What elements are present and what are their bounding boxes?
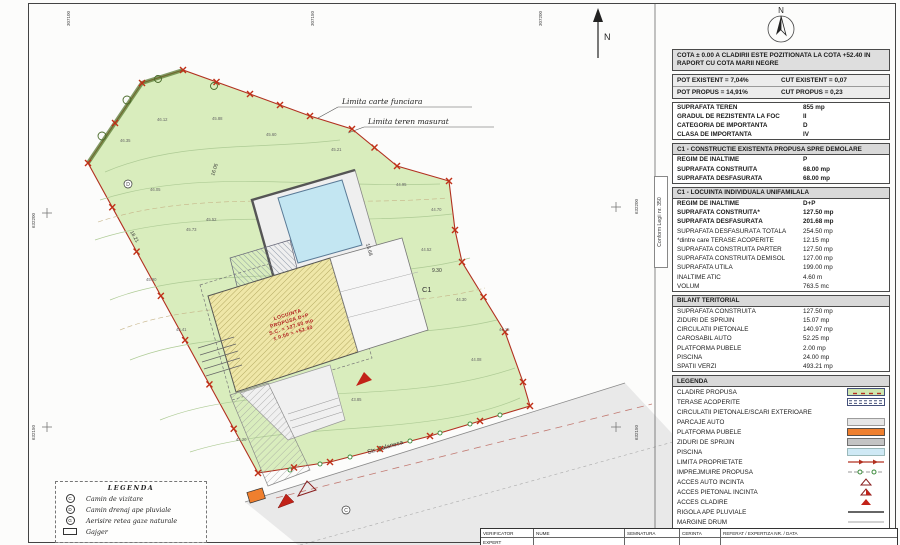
- row-label: ZIDURI DE SPRIJIN: [677, 317, 803, 324]
- panel-legend: LEGENDA CLADIRE PROPUSĂTERASE ACOPERITEC…: [672, 375, 890, 538]
- limita-teren-masurat-label: Limita teren masurat: [367, 117, 450, 126]
- row-value: 127.50 mp: [803, 209, 889, 216]
- teren-row: CATEGORIA DE IMPORTANTAD: [673, 121, 889, 130]
- legend-item: RIGOLA APE PLUVIALE: [673, 507, 889, 517]
- manhole-symbol-c: C: [342, 506, 350, 514]
- legend-item-label: PLATFORMA PUBELE: [677, 429, 847, 436]
- teren-table: SUPRAFATA TEREN855 mpGRADUL DE REZISTENT…: [672, 102, 890, 141]
- spot-elevation: 44.20: [236, 437, 247, 442]
- spot-elevation: 44.52: [421, 247, 432, 252]
- section-header: BILANT TERITORIAL: [673, 296, 889, 307]
- spot-elevation: 44.95: [396, 182, 407, 187]
- limita-carte-funciara-label: Limita carte funciara: [341, 97, 422, 106]
- row-label: SUPRAFATA DESFASURATĂ TOTALA: [677, 228, 803, 235]
- teren-row: GRADUL DE REZISTENTA LA FOCII: [673, 112, 889, 121]
- row-label: SUPRAFATA DESFASURATA: [677, 175, 803, 182]
- legend-header: LEGENDA: [673, 376, 889, 387]
- legend-item: PARCAJE AUTO: [673, 417, 889, 427]
- panel-section: C1 - LOCUINTA INDIVIDUALA UNIFAMILALAREG…: [672, 187, 890, 292]
- site-plan-sheet: D C Limita carte funciara Limita teren m…: [0, 0, 900, 545]
- plan-legend-symbol: G: [62, 516, 78, 525]
- manhole-symbol-d: D: [124, 180, 132, 188]
- row-label: VOLUM: [677, 283, 803, 290]
- row-value: 68.00 mp: [803, 175, 889, 182]
- legend-swatch: [847, 388, 885, 396]
- plan-legend-label: Camin drenaj ape pluviale: [86, 506, 171, 514]
- legend-swatch-line-dark: [847, 508, 885, 516]
- plan-legend-symbol: D: [62, 505, 78, 514]
- side-note: Conform Legii nr. 350: [654, 176, 668, 268]
- panel-row: CIRCULATII PIETONALE140.97 mp: [673, 325, 889, 334]
- row-value: 127.50 mp: [803, 246, 889, 253]
- plan-legend-box: LEGENDA CCamin de vizitareDCamin drenaj …: [55, 481, 207, 543]
- spot-elevation: 45.88: [212, 116, 223, 121]
- spot-elevation: 44.15: [499, 327, 510, 332]
- row-label: *dintre care TERASE ACOPERITE: [677, 237, 803, 244]
- title-block-cell: [721, 538, 897, 545]
- row-label: CLASA DE IMPORTANTA: [677, 131, 803, 138]
- row-label: SUPRAFATA UTILĂ: [677, 264, 803, 271]
- legend-swatch-shape: [872, 470, 876, 474]
- plan-legend-item: GAerisire retea gaze naturale: [62, 515, 200, 526]
- plan-legend-item: DCamin drenaj ape pluviale: [62, 504, 200, 515]
- panel-row: REGIM DE INALTIMED+P: [673, 199, 889, 208]
- row-label: CIRCULATII PIETONALE: [677, 326, 803, 333]
- teren-row: CLASA DE IMPORTANTAIV: [673, 130, 889, 139]
- panel-section: C1 - CONSTRUCTIE EXISTENTA PROPUSA SPRE …: [672, 143, 890, 184]
- legend-item: CLADIRE PROPUSĂ: [673, 387, 889, 397]
- legend-swatch-shape: [861, 479, 871, 485]
- row-value: P: [803, 156, 889, 163]
- pot-cut-cell: POT EXISTENT = 7,04%: [677, 77, 781, 84]
- legend-swatch-line-thin: [847, 518, 885, 526]
- grid-coordinate-label: 307150: [310, 11, 315, 26]
- spot-elevation: 45.52: [206, 217, 217, 222]
- row-value: 12.15 mp: [803, 237, 889, 244]
- pot-cut-row: POT PROPUS = 14,91%CUT PROPUS = 0,23: [673, 86, 889, 98]
- panel-row: SUPRAFATA CONSTRUITĂ68.00 mp: [673, 165, 889, 174]
- plan-legend-item: CCamin de vizitare: [62, 493, 200, 504]
- legend-item-label: PISCINĂ: [677, 449, 847, 456]
- pot-cut-cell: CUT EXISTENT = 0,07: [781, 77, 885, 84]
- legend-swatch-shape: [848, 399, 885, 406]
- panel-row: PLATFORMA PUBELE2.00 mp: [673, 344, 889, 353]
- legend-item-label: ACCES AUTO INCINTA: [677, 479, 847, 486]
- row-value: IV: [803, 131, 889, 138]
- legend-item-label: CLADIRE PROPUSĂ: [677, 389, 847, 396]
- panel-row: SUPRAFATA UTILĂ199.00 mp: [673, 263, 889, 272]
- row-value: 4.60 m: [803, 274, 889, 281]
- plan-legend-symbol: [62, 528, 78, 535]
- spot-elevation: 46.12: [157, 117, 168, 122]
- legend-swatch-building: [847, 388, 885, 396]
- row-value: D: [803, 122, 889, 129]
- legend-swatch-shape: [848, 419, 885, 426]
- row-value: 254.50 mp: [803, 228, 889, 235]
- title-block-cell: EXPERT: [481, 538, 534, 545]
- panel-section: BILANT TERITORIALSUPRAFATA CONSTRUITĂ127…: [672, 295, 890, 372]
- legend-swatch-tri-filled: [847, 498, 885, 506]
- row-label: SUPRAFATA CONSTRUITĂ*: [677, 209, 803, 216]
- legend-swatch: [847, 498, 885, 506]
- plan-legend-symbol: C: [62, 494, 78, 503]
- svg-text:N: N: [778, 6, 784, 15]
- panel-row: SUPRAFATA DESFASURATĂ TOTALA254.50 mp: [673, 226, 889, 235]
- spot-elevation: 45.60: [266, 132, 277, 137]
- spot-elevation: 45.41: [176, 327, 187, 332]
- cota-note: COTA ± 0.00 A CLADIRII ESTE POZITIONATA …: [672, 49, 890, 71]
- legend-item-label: PARCAJE AUTO: [677, 419, 847, 426]
- compass-icon: N: [759, 5, 803, 45]
- title-block-cell: VERIFICATOR: [481, 529, 534, 537]
- section-header: C1 - LOCUINTA INDIVIDUALA UNIFAMILALA: [673, 188, 889, 199]
- section-header: C1 - CONSTRUCTIE EXISTENTA PROPUSA SPRE …: [673, 144, 889, 155]
- panel-row: SUPRAFATA DESFASURATA68.00 mp: [673, 174, 889, 183]
- row-label: PISCINĂ: [677, 354, 803, 361]
- legend-swatch-fence-line: [847, 468, 885, 476]
- spot-elevation: 46.05: [150, 187, 161, 192]
- legend-swatch: [847, 448, 885, 456]
- legend-swatch-orange: [847, 428, 885, 436]
- panel-row: SUPRAFATA CONSTRUITĂ127.50 mp: [673, 307, 889, 316]
- row-label: INALTIME ATIC: [677, 274, 803, 281]
- legend-swatch: [847, 478, 885, 486]
- legend-item-label: MARGINE DRUM: [677, 519, 847, 526]
- circled-letter-symbol: C: [66, 494, 75, 503]
- row-label: PLATFORMA PUBELE: [677, 345, 803, 352]
- legend-item-label: CIRCULATII PIETONALE/SCĂRI EXTERIOARE: [677, 409, 847, 416]
- legend-swatch-blue: [847, 448, 885, 456]
- row-value: II: [803, 113, 889, 120]
- panel-row: SUPRAFATA DESFASURATĂ201.68 mp: [673, 217, 889, 226]
- grid-coordinate-label: 632200: [31, 213, 36, 228]
- row-label: SUPRAFATA DESFASURATĂ: [677, 218, 803, 225]
- row-label: CAROSABIL AUTO: [677, 335, 803, 342]
- row-label: CATEGORIA DE IMPORTANTA: [677, 122, 803, 129]
- row-value: D+P: [803, 200, 889, 207]
- spot-elevation: 45.21: [331, 147, 342, 152]
- row-value: 24.00 mp: [803, 354, 889, 361]
- title-block-cell: SEMNATURA: [625, 529, 680, 537]
- row-value: 68.00 mp: [803, 166, 889, 173]
- pot-cut-row: POT EXISTENT = 7,04%CUT EXISTENT = 0,07: [673, 75, 889, 86]
- legend-item-label: LIMITĂ PROPRIETATE: [677, 459, 847, 466]
- panel-row: PISCINĂ24.00 mp: [673, 353, 889, 362]
- row-value: 127.00 mp: [803, 255, 889, 262]
- row-value: 140.97 mp: [803, 326, 889, 333]
- row-label: SUPRAFATA CONSTRUITĂ: [677, 308, 803, 315]
- dimension-label: 9.30: [432, 268, 442, 274]
- legend-swatch-gray-light: [847, 418, 885, 426]
- row-label: GRADUL DE REZISTENTA LA FOC: [677, 113, 803, 120]
- title-block-cell: NUME: [534, 529, 625, 537]
- legend-swatch-tri-half: [847, 488, 885, 496]
- panel-row: SUPRAFATA CONSTRUITĂ*127.50 mp: [673, 208, 889, 217]
- legend-swatch-tri-open: [847, 478, 885, 486]
- panel-row: ZIDURI DE SPRIJIN15.07 mp: [673, 316, 889, 325]
- plan-legend-item: Gajger: [62, 526, 200, 537]
- title-block-row: VERIFICATORNUMESEMNATURACERINTAREFERAT /…: [481, 529, 897, 538]
- row-label: SUPRAFATA TEREN: [677, 104, 803, 111]
- title-block-cell: [680, 538, 721, 545]
- panel-row: SUPRAFATA CONSTRUITA PARTER127.50 mp: [673, 245, 889, 254]
- row-value: 493.21 mp: [803, 363, 889, 370]
- panel-row: SUPRAFATA CONSTRUITA DEMISOL127.00 mp: [673, 254, 889, 263]
- teren-row: SUPRAFATA TEREN855 mp: [673, 103, 889, 112]
- row-value: 2.00 mp: [803, 345, 889, 352]
- legend-swatch-shape: [848, 389, 885, 396]
- legend-item-label: RIGOLA APE PLUVIALE: [677, 509, 847, 516]
- info-panel: N COTA ± 0.00 A CLADIRII ESTE POZITIONAT…: [672, 4, 890, 538]
- svg-text:C: C: [344, 508, 348, 514]
- legend-swatch: [847, 458, 885, 466]
- circled-letter-symbol: G: [66, 516, 75, 525]
- legend-swatch-stripes: [847, 398, 885, 406]
- legend-swatch: [847, 428, 885, 436]
- row-value: 199.00 mp: [803, 264, 889, 271]
- title-block-row: EXPERT: [481, 538, 897, 545]
- legend-item-label: ACCES PIETONAL INCINTA: [677, 489, 847, 496]
- grid-coordinate-label: 307100: [66, 11, 71, 26]
- legend-item: LIMITĂ PROPRIETATE: [673, 457, 889, 467]
- legend-swatch-shape: [859, 460, 864, 465]
- legend-swatch-gray: [847, 438, 885, 446]
- panel-row: REGIM DE INALTIMEP: [673, 155, 889, 164]
- legend-swatch-limit-line: [847, 458, 885, 466]
- gajger-symbol: [63, 528, 77, 535]
- legend-swatch-shape: [858, 470, 862, 474]
- pot-cut-cell: CUT PROPUS = 0,23: [781, 89, 885, 96]
- legend-swatch-shape: [848, 429, 885, 436]
- legend-item: ACCES AUTO INCINTA: [673, 477, 889, 487]
- row-value: 52.25 mp: [803, 335, 889, 342]
- legend-swatch: [847, 398, 885, 406]
- title-block-cell: [534, 538, 625, 545]
- spot-elevation: 44.70: [431, 207, 442, 212]
- svg-text:D: D: [126, 182, 130, 188]
- svg-text:N: N: [604, 32, 611, 42]
- row-label: REGIM DE INALTIME: [677, 156, 803, 163]
- spot-elevation: 43.85: [351, 397, 362, 402]
- panel-row: CAROSABIL AUTO52.25 mp: [673, 334, 889, 343]
- spot-elevation: 46.35: [120, 138, 131, 143]
- legend-item: IMPREJMUIRE PROPUSĂ: [673, 467, 889, 477]
- grid-coordinate-label: 632150: [31, 425, 36, 440]
- legend-swatch: [847, 418, 885, 426]
- panel-row: SPATII VERZI493.21 mp: [673, 362, 889, 371]
- plan-legend-label: Aerisire retea gaze naturale: [86, 517, 177, 525]
- row-value: 127.50 mp: [803, 308, 889, 315]
- pot-cut-cell: POT PROPUS = 14,91%: [677, 89, 781, 96]
- legend-swatch: [847, 438, 885, 446]
- legend-item-label: TERASE ACOPERITE: [677, 399, 847, 406]
- legend-swatch: [847, 518, 885, 526]
- legend-swatch-shape: [873, 460, 878, 465]
- spot-elevation: 44.30: [456, 297, 467, 302]
- legend-swatch-shape: [848, 449, 885, 456]
- legend-item: CIRCULATII PIETONALE/SCĂRI EXTERIOARE: [673, 407, 889, 417]
- legend-item: TERASE ACOPERITE: [673, 397, 889, 407]
- row-value: 15.07 mp: [803, 317, 889, 324]
- legend-item: ACCES CLADIRE: [673, 497, 889, 507]
- panel-row: VOLUM763.5 mc: [673, 282, 889, 291]
- grid-coordinate-label: 632150: [634, 425, 639, 440]
- legend-swatch: [847, 508, 885, 516]
- legend-swatch: [847, 488, 885, 496]
- legend-swatch: [847, 408, 885, 416]
- legend-item: ZIDURI DE SPRIJIN: [673, 437, 889, 447]
- row-label: REGIM DE INALTIME: [677, 200, 803, 207]
- legend-item-label: IMPREJMUIRE PROPUSĂ: [677, 469, 847, 476]
- plan-legend-label: Gajger: [86, 528, 108, 536]
- panel-row: *dintre care TERASE ACOPERITE12.15 mp: [673, 236, 889, 245]
- legend-item: ACCES PIETONAL INCINTA: [673, 487, 889, 497]
- legend-item: PLATFORMA PUBELE: [673, 427, 889, 437]
- spot-elevation: 45.90: [146, 277, 157, 282]
- row-value: 855 mp: [803, 104, 889, 111]
- row-label: SPATII VERZI: [677, 363, 803, 370]
- grid-coordinate-label: 307200: [538, 11, 543, 26]
- row-label: SUPRAFATA CONSTRUITĂ: [677, 166, 803, 173]
- legend-item-label: ACCES CLADIRE: [677, 499, 847, 506]
- pot-cut-table: POT EXISTENT = 7,04%CUT EXISTENT = 0,07P…: [672, 74, 890, 99]
- building-c1-label: C1: [422, 285, 432, 294]
- legend-item: PISCINĂ: [673, 447, 889, 457]
- title-block-cell: [625, 538, 680, 545]
- title-block-cell: REFERAT / EXPERTIZA NR. / DATA: [721, 529, 897, 537]
- title-block: VERIFICATORNUMESEMNATURACERINTAREFERAT /…: [480, 528, 898, 545]
- row-value: 763.5 mc: [803, 283, 889, 290]
- panel-row: INALTIME ATIC4.60 m: [673, 272, 889, 281]
- plan-legend-label: Camin de vizitare: [86, 495, 143, 503]
- compass: N: [672, 4, 890, 46]
- legend-item-label: ZIDURI DE SPRIJIN: [677, 439, 847, 446]
- north-arrow-plan: N: [593, 8, 611, 58]
- spot-elevation: 45.73: [186, 227, 197, 232]
- legend-swatch-shape: [861, 499, 871, 505]
- row-label: SUPRAFATA CONSTRUITA DEMISOL: [677, 255, 803, 262]
- row-value: 201.68 mp: [803, 218, 889, 225]
- legend-item: MARGINE DRUM: [673, 517, 889, 527]
- legend-swatch-shape: [848, 439, 885, 446]
- spot-elevation: 44.08: [471, 357, 482, 362]
- legend-swatch: [847, 468, 885, 476]
- plan-legend-title: LEGENDA: [62, 484, 200, 493]
- title-block-cell: CERINTA: [680, 529, 721, 537]
- row-label: SUPRAFATA CONSTRUITA PARTER: [677, 246, 803, 253]
- grid-coordinate-label: 632200: [634, 199, 639, 214]
- circled-letter-symbol: D: [66, 505, 75, 514]
